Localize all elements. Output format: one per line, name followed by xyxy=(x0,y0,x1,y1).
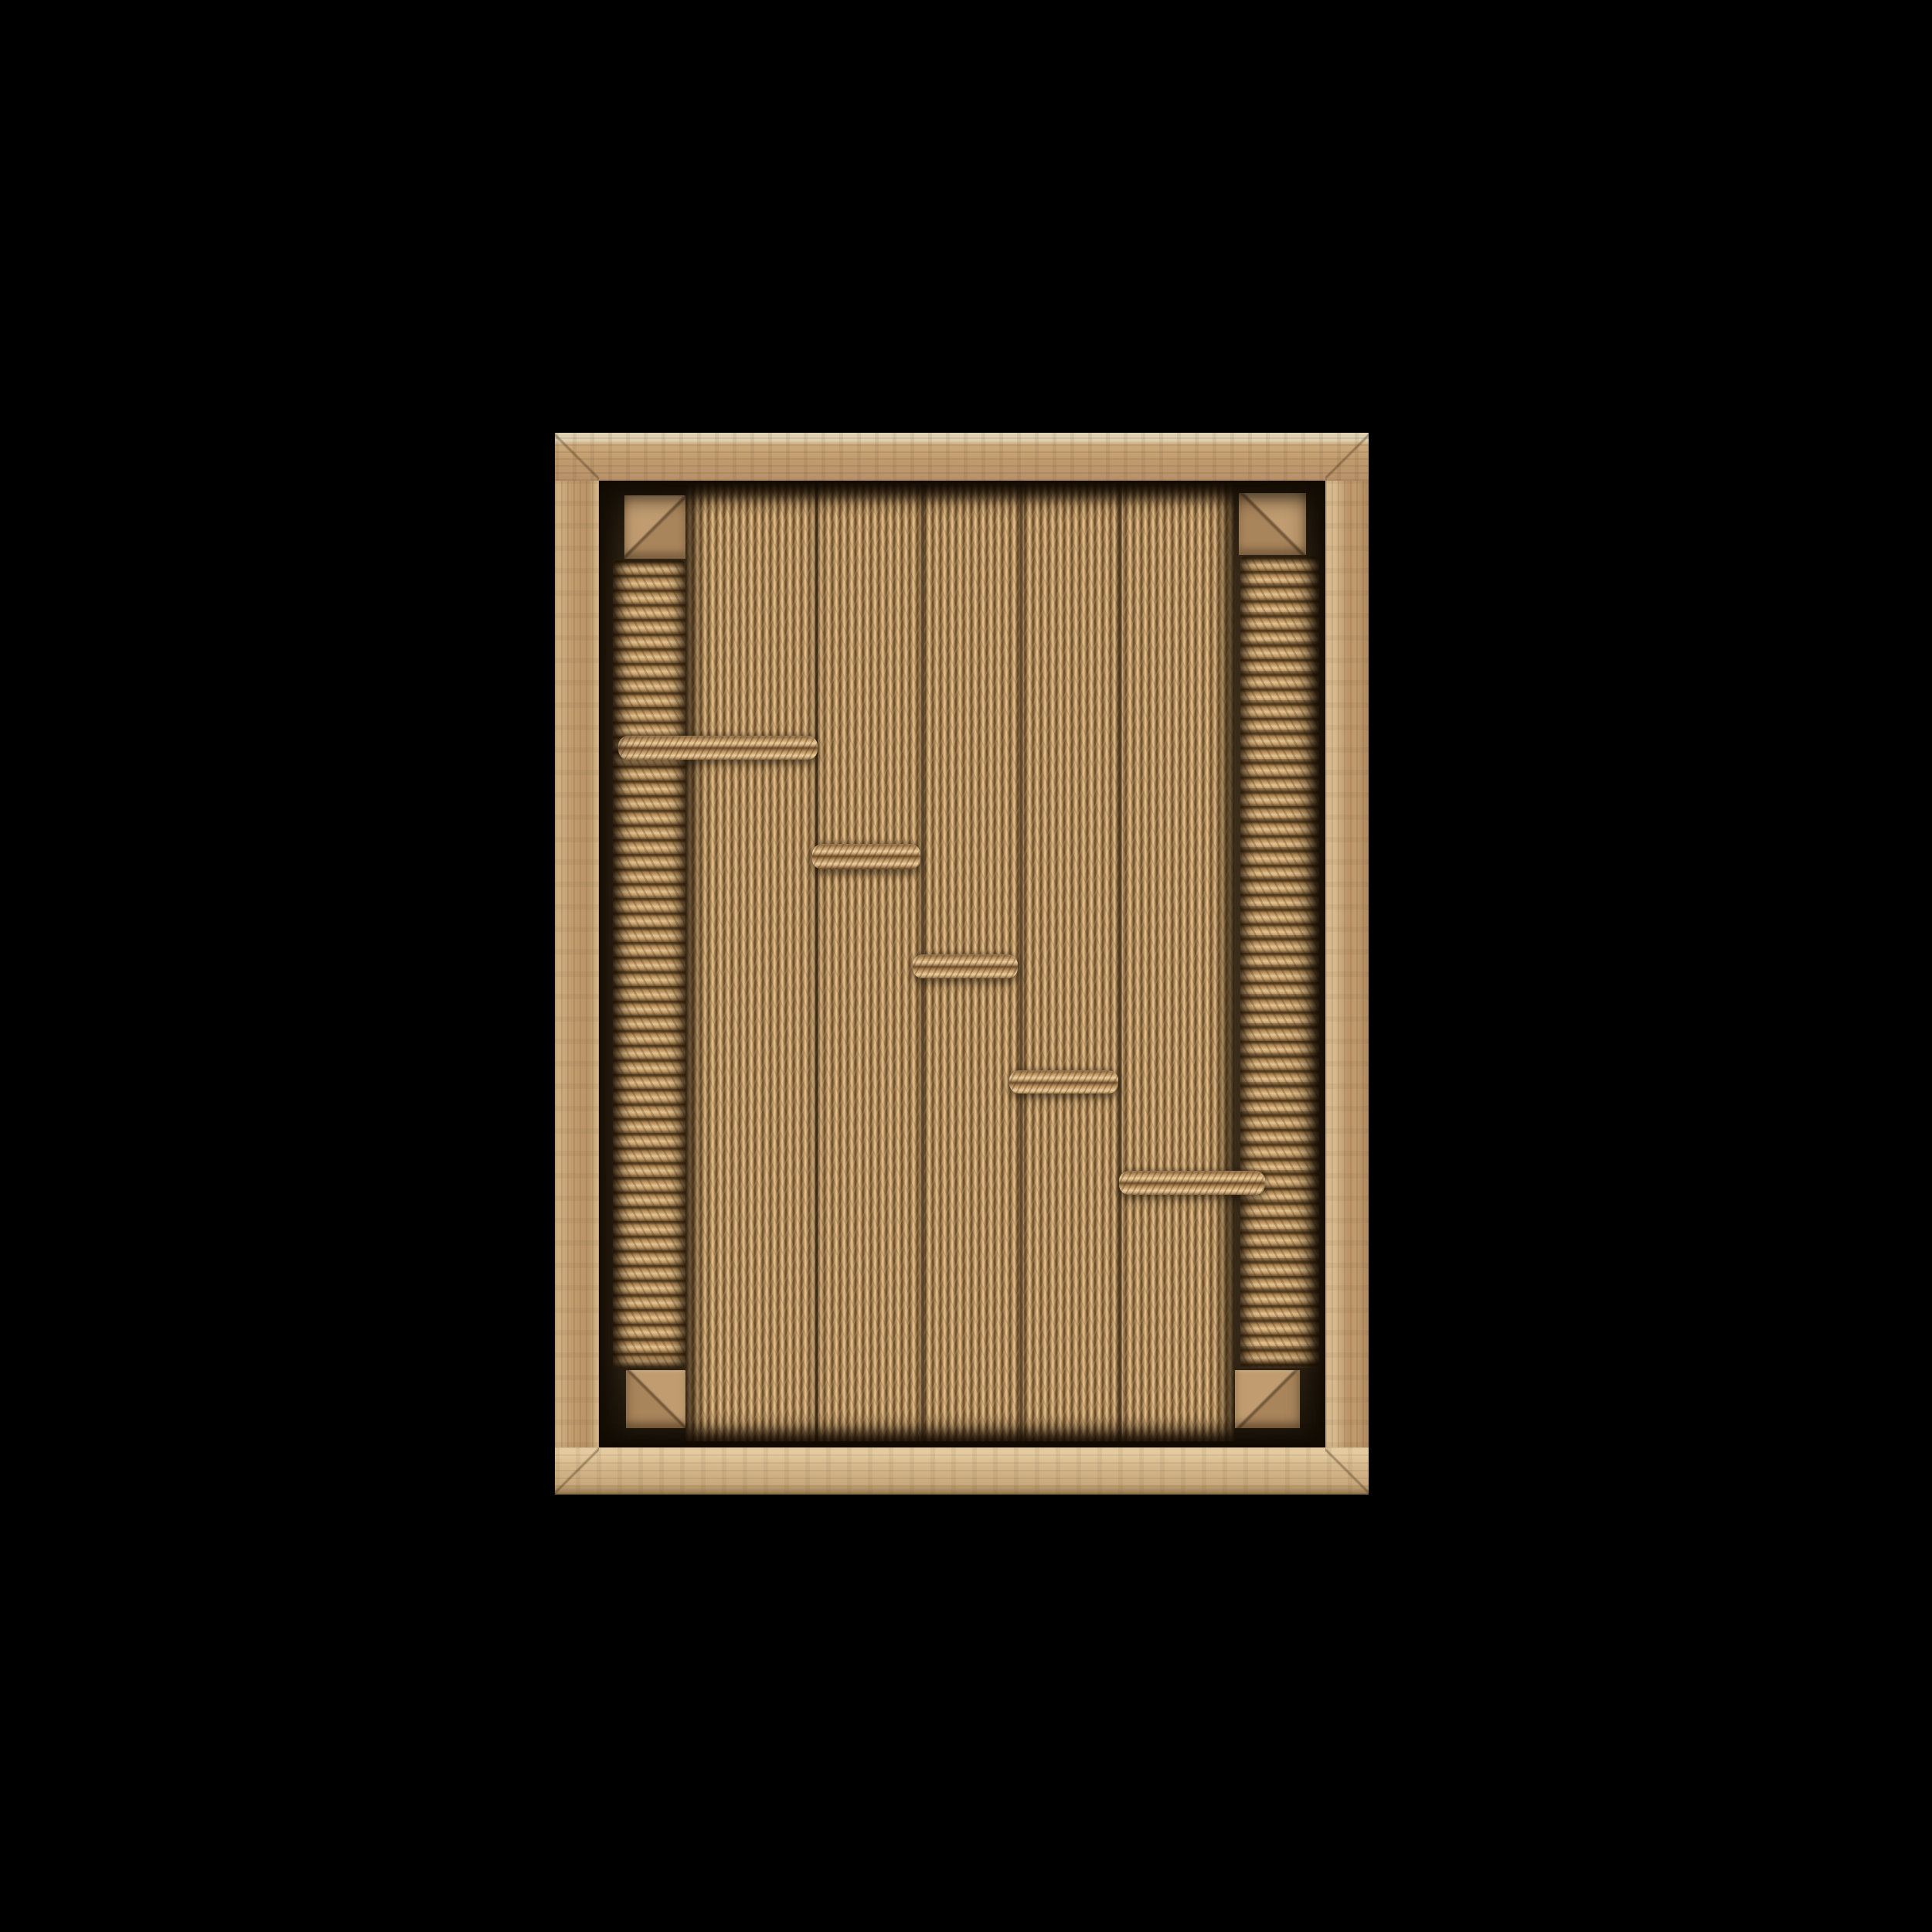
frame-bottom-rail xyxy=(555,1447,1369,1495)
framed-cord-artwork xyxy=(555,433,1369,1495)
horizontal-cord-bar-5 xyxy=(1119,1171,1265,1195)
inner-rail-corner-top-right xyxy=(1239,493,1306,555)
horizontal-cord-bar-4 xyxy=(1009,1070,1118,1094)
horizontal-cord-bar-3 xyxy=(913,954,1018,978)
cord-group-gap-1 xyxy=(814,483,819,1441)
right-wrapped-cord-column xyxy=(1240,556,1319,1368)
horizontal-cord-bar-2 xyxy=(812,844,920,869)
frame-left-rail xyxy=(555,481,599,1447)
inner-rail-corner-bottom-right xyxy=(1235,1370,1300,1428)
frame-top-rail xyxy=(555,433,1369,481)
cord-group-gap-4 xyxy=(1117,483,1123,1441)
inner-rail-corner-bottom-left xyxy=(626,1370,688,1428)
shadow-box-opening xyxy=(599,481,1325,1447)
frame-right-rail xyxy=(1325,481,1369,1447)
cord-bottom-shadow xyxy=(599,1441,1325,1447)
inner-rail-corner-top-left xyxy=(624,495,685,559)
left-wrapped-cord-column xyxy=(613,560,685,1368)
cord-group-gap-3 xyxy=(1019,483,1024,1441)
horizontal-cord-bar-1 xyxy=(618,736,818,760)
product-photo-canvas xyxy=(0,0,1932,1932)
